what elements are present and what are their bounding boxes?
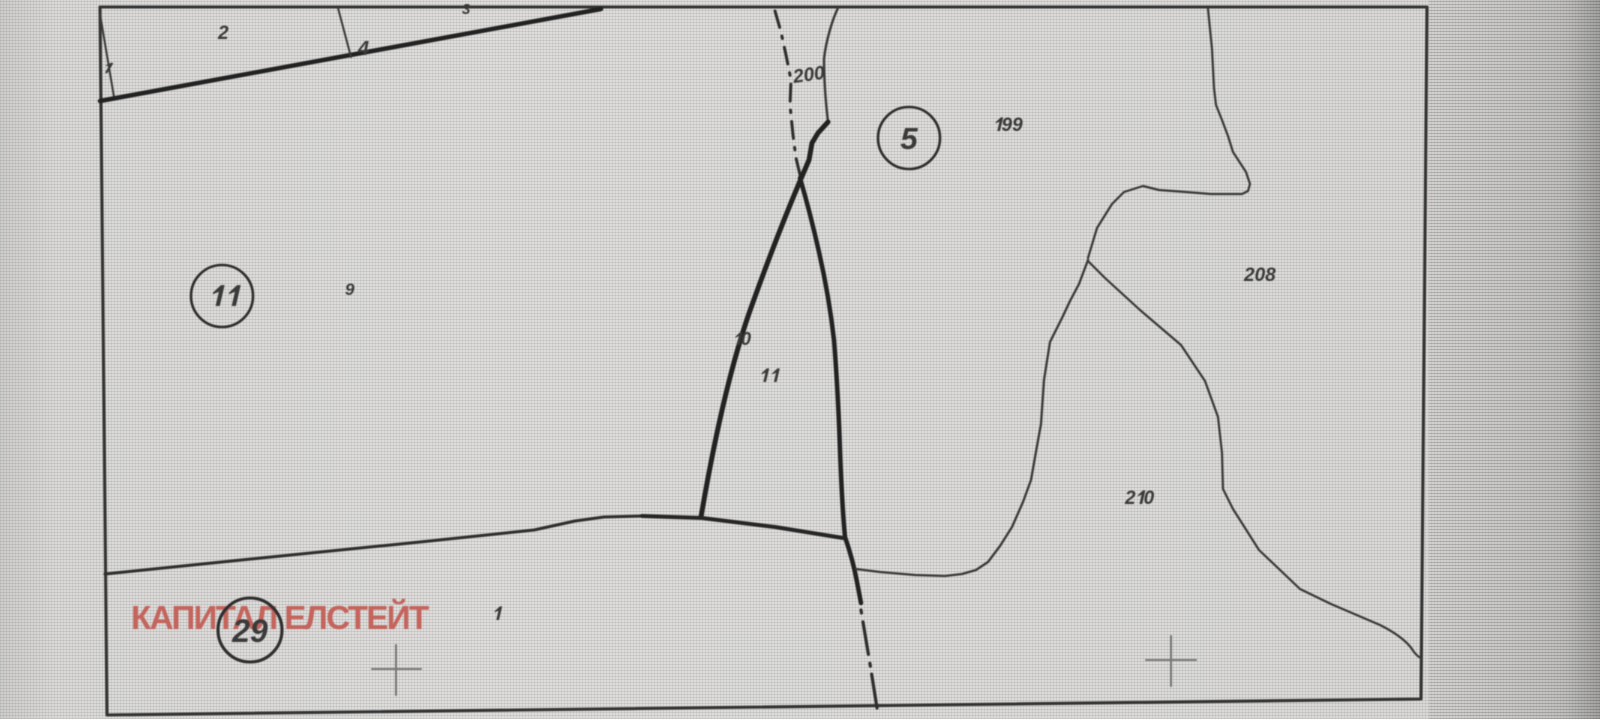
svg-text:29: 29	[231, 613, 268, 649]
svg-text:208: 208	[1243, 265, 1276, 286]
svg-text:0: 0	[1144, 488, 1155, 509]
svg-text:5: 5	[900, 121, 918, 156]
svg-text:9: 9	[345, 280, 355, 299]
svg-text:2: 2	[217, 23, 229, 44]
svg-text:200: 200	[791, 63, 827, 88]
svg-text:99: 99	[1002, 115, 1024, 136]
svg-text:2: 2	[1124, 488, 1136, 509]
svg-text:0: 0	[741, 329, 751, 349]
svg-text:4: 4	[357, 38, 369, 60]
svg-text:3: 3	[462, 1, 471, 18]
